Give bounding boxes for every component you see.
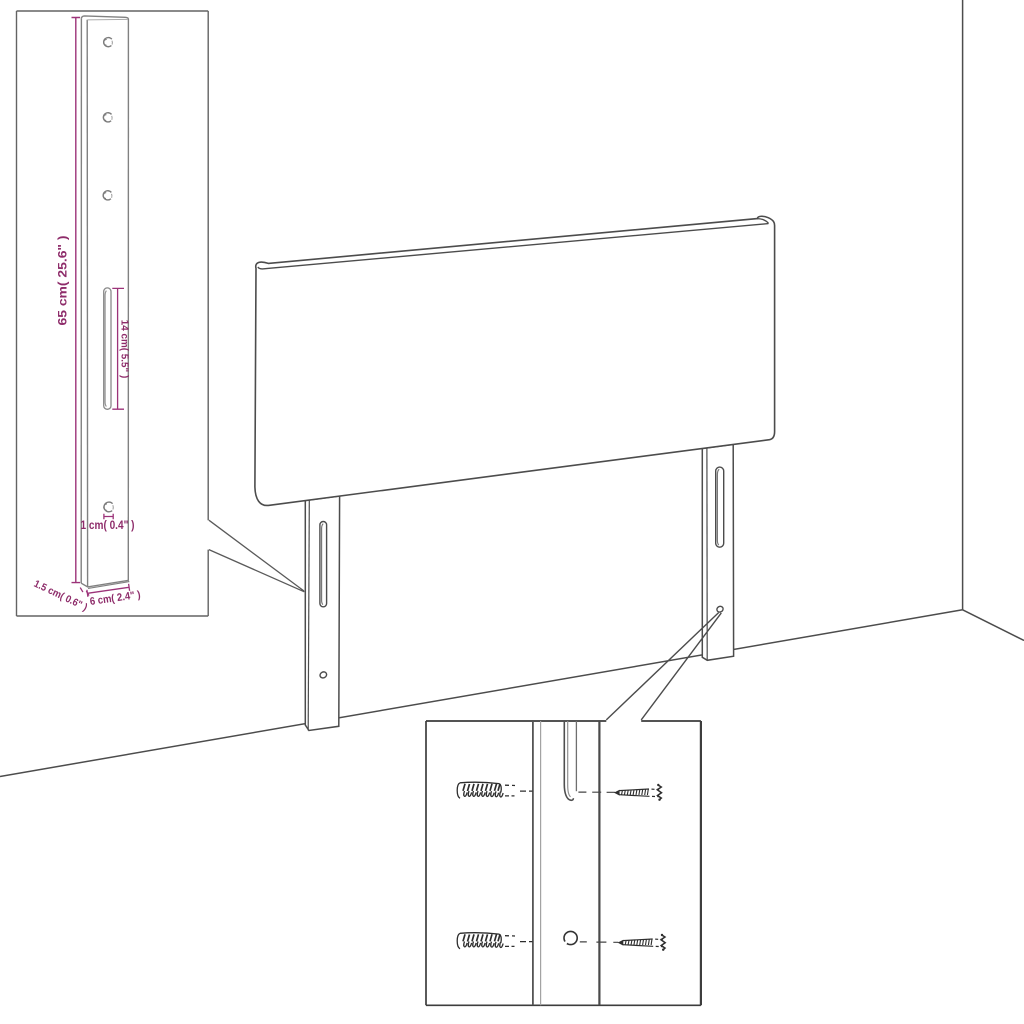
svg-text:65 cm( 25.6" ): 65 cm( 25.6" ) <box>55 236 69 326</box>
svg-text:14 cm( 5.5" ): 14 cm( 5.5" ) <box>119 320 130 379</box>
svg-text:1.5 cm( 0.6" ): 1.5 cm( 0.6" ) <box>32 579 89 614</box>
svg-text:1 cm( 0.4" ): 1 cm( 0.4" ) <box>81 518 135 532</box>
